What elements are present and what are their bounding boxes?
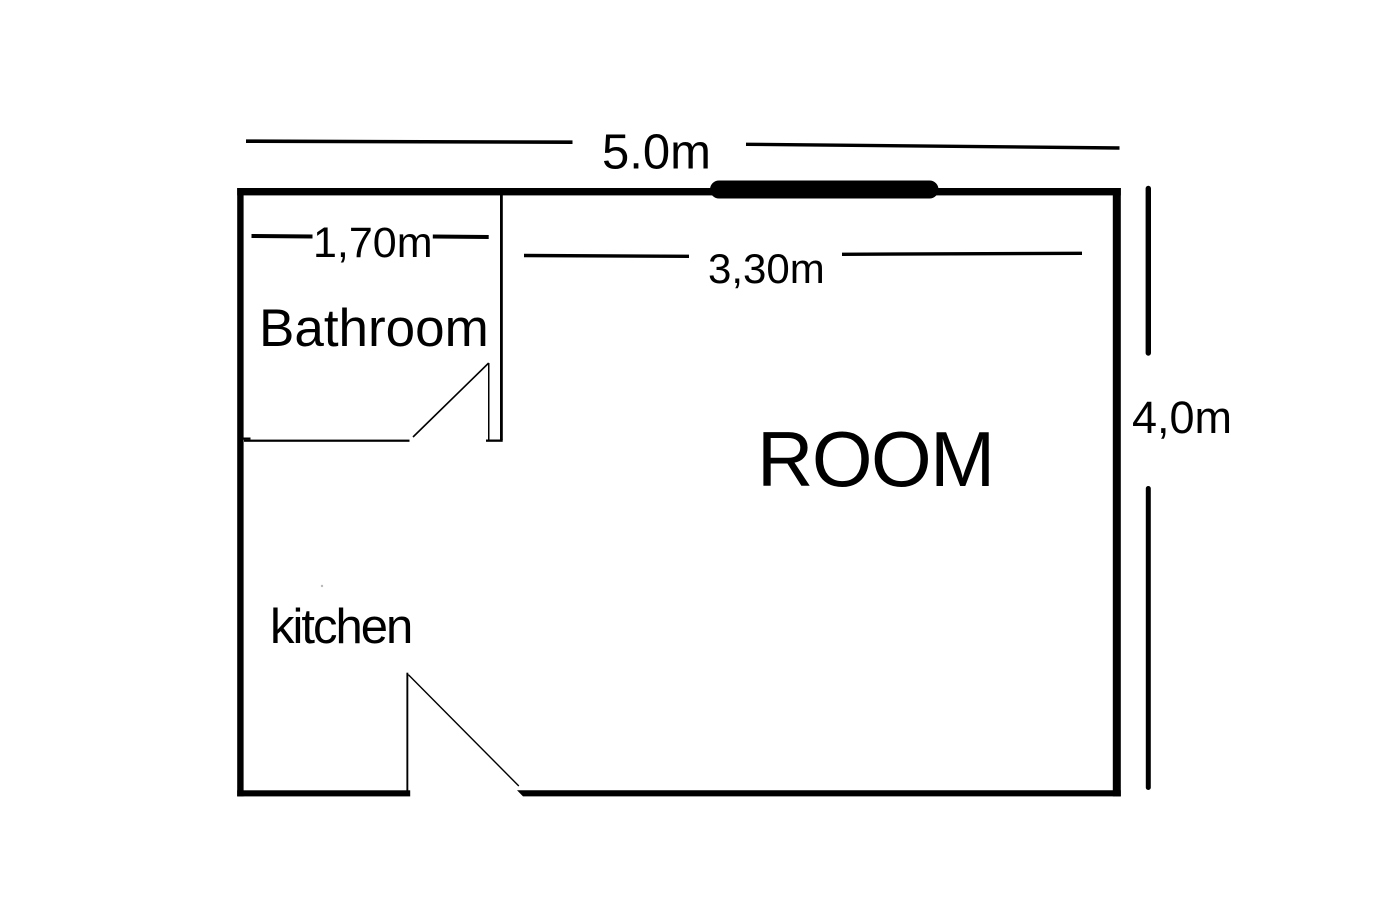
svg-text:1,70m: 1,70m [313, 219, 433, 267]
svg-text:3,30m: 3,30m [708, 245, 825, 292]
svg-text:kitchen: kitchen [270, 600, 411, 654]
svg-text:ROOM: ROOM [757, 415, 994, 503]
svg-text:5.0m: 5.0m [602, 126, 711, 180]
svg-text:4,0m: 4,0m [1132, 392, 1232, 443]
svg-text:Bathroom: Bathroom [259, 299, 489, 358]
